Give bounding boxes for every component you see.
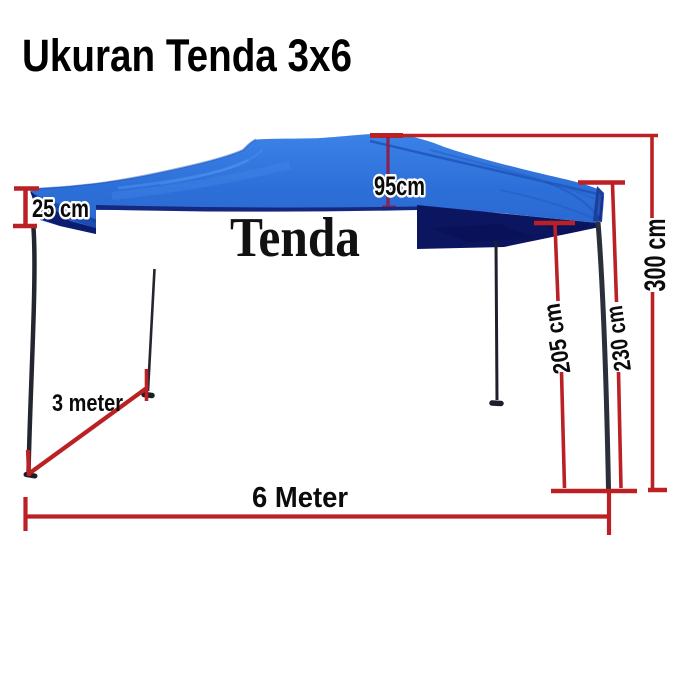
svg-text:Ukuran Tenda 3x6: Ukuran Tenda 3x6: [22, 30, 352, 81]
svg-text:6 Meter: 6 Meter: [252, 482, 348, 514]
svg-text:300 cm: 300 cm: [639, 219, 672, 292]
svg-text:3 meter: 3 meter: [52, 390, 123, 417]
svg-text:95cm: 95cm: [374, 171, 425, 201]
svg-text:Tenda: Tenda: [230, 207, 360, 269]
svg-text:25 cm: 25 cm: [32, 195, 89, 223]
